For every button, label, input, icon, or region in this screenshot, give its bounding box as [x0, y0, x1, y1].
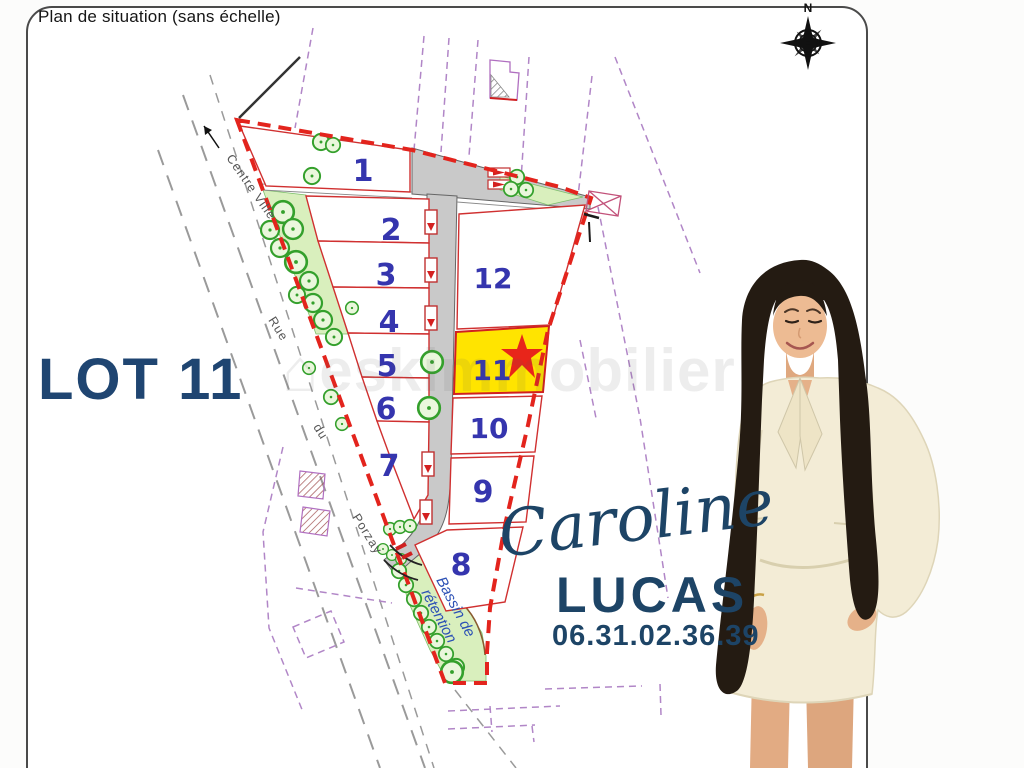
- agent-phone: 06.31.02.36.39: [552, 620, 760, 653]
- agent-face: [773, 280, 827, 358]
- real-estate-flyer: Plan de situation (sans échelle): [0, 0, 1024, 768]
- agent-photo: [0, 0, 1024, 768]
- agent-last-name: LUCAS: [556, 566, 748, 624]
